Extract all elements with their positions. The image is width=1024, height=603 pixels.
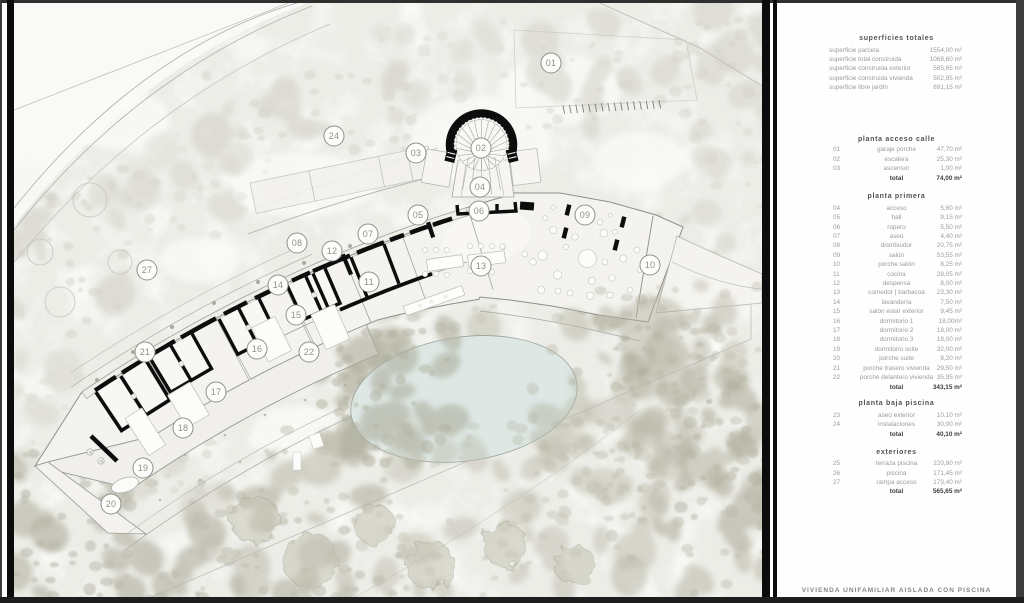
svg-text:14: 14 (273, 280, 284, 290)
svg-text:27: 27 (142, 265, 153, 275)
svg-text:07: 07 (363, 229, 374, 239)
svg-text:09: 09 (580, 210, 591, 220)
svg-text:13: 13 (476, 261, 487, 271)
svg-text:22: 22 (304, 347, 315, 357)
svg-text:20: 20 (106, 499, 117, 509)
svg-text:08: 08 (292, 238, 303, 248)
svg-text:04: 04 (475, 182, 486, 192)
svg-text:18: 18 (178, 423, 189, 433)
svg-text:01: 01 (546, 58, 557, 68)
svg-text:21: 21 (140, 347, 151, 357)
svg-text:05: 05 (413, 210, 424, 220)
svg-text:16: 16 (252, 344, 263, 354)
svg-text:06: 06 (474, 206, 485, 216)
svg-text:24: 24 (329, 131, 340, 141)
svg-text:19: 19 (138, 463, 149, 473)
svg-text:03: 03 (411, 148, 422, 158)
svg-text:02: 02 (476, 143, 487, 153)
svg-text:17: 17 (211, 387, 222, 397)
svg-text:11: 11 (364, 277, 374, 287)
svg-text:15: 15 (291, 310, 302, 320)
svg-text:10: 10 (645, 260, 656, 270)
svg-text:12: 12 (327, 246, 338, 256)
